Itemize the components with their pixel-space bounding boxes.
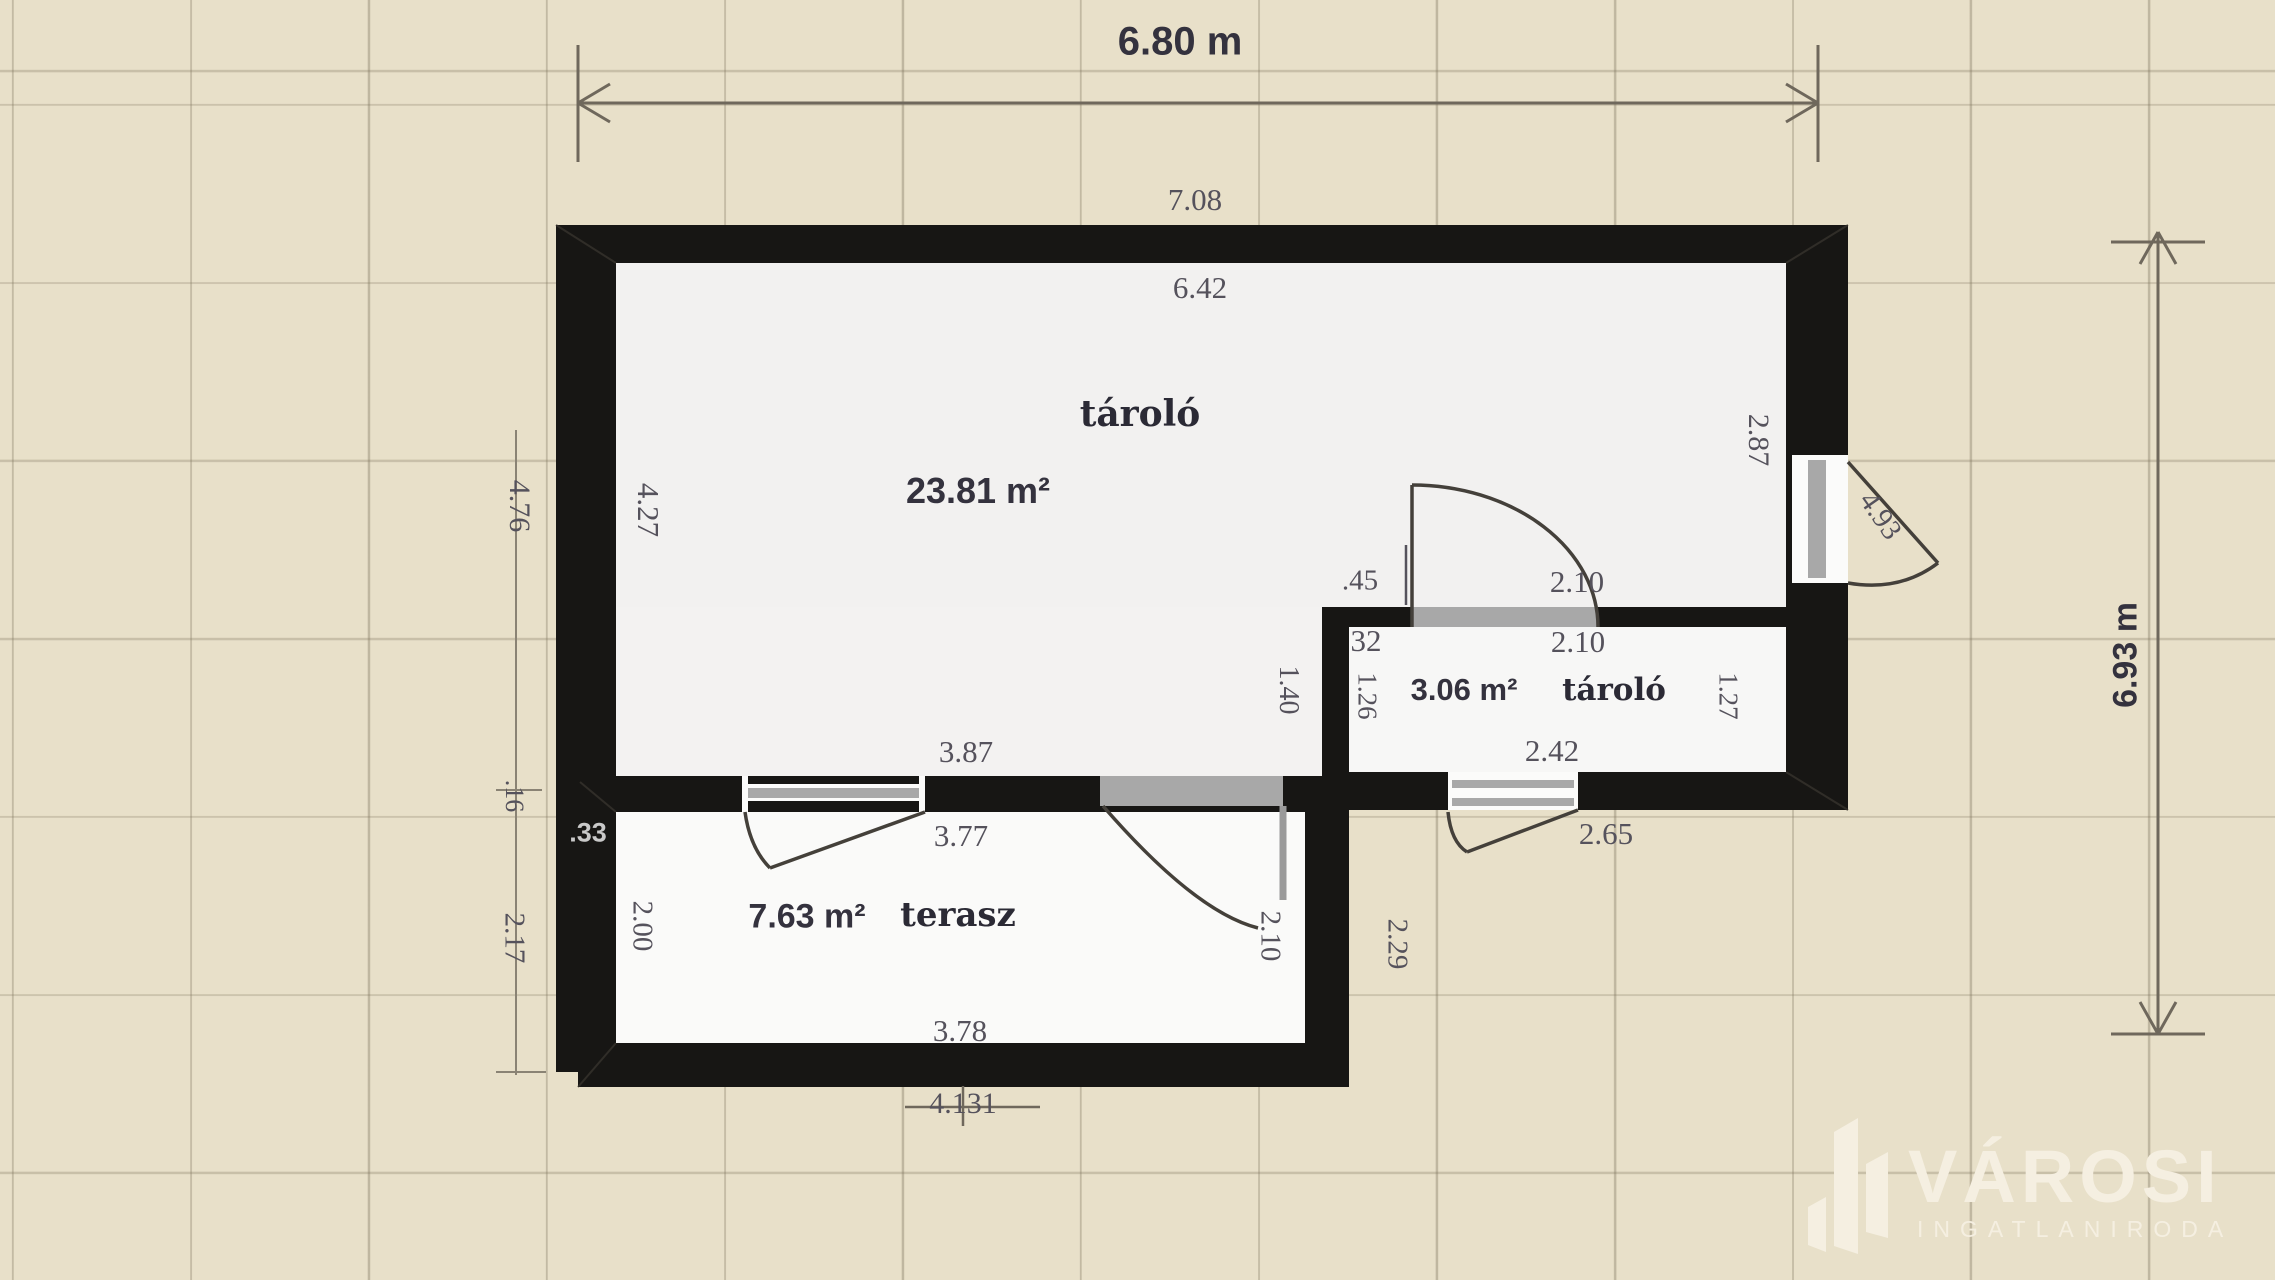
dim-top-wall: 7.08	[1168, 182, 1222, 218]
dim-room1-right: 2.87	[1741, 414, 1775, 467]
dim-terrace-left-inner: 2.00	[626, 901, 659, 952]
dim-room1-left: 4.27	[630, 483, 666, 537]
room1-area: 23.81 m²	[906, 470, 1050, 512]
dim-left-terrace: 2.17	[498, 913, 531, 964]
dim-terrace-bottom: 3.78	[933, 1013, 987, 1049]
logo-subtitle: INGATLANIRODA	[1917, 1216, 2233, 1243]
dim-room2-outside-left: 1.40	[1272, 666, 1304, 715]
logo-buildings-icon	[1800, 1112, 1910, 1257]
dim-room2-right: 1.27	[1713, 672, 1744, 719]
dim-room2-left: 1.26	[1352, 672, 1383, 719]
dim-left-mid: .16	[499, 780, 529, 813]
dim-room2-bottom: 2.42	[1525, 733, 1579, 769]
dim-bottom-outer: 4.131	[929, 1087, 997, 1121]
room1-name: tároló	[1080, 393, 1201, 435]
floor-plan-scene: 6.80 m 7.08 6.42 tároló 23.81 m² 4.76 4.…	[0, 0, 2275, 1280]
dim-terrace-wall-top: 3.87	[939, 734, 993, 770]
dim-left-outer: 4.76	[502, 480, 536, 533]
room2-name: tároló	[1562, 672, 1666, 708]
dim-room2-bottom-outer: 2.65	[1579, 816, 1633, 852]
dim-partition-opening-top: 2.10	[1550, 564, 1604, 600]
dim-terrace-corner: .33	[569, 818, 607, 849]
dim-overall-width: 6.80 m	[1118, 20, 1243, 65]
dim-partition-left: .45	[1342, 565, 1378, 598]
dim-room1-top: 6.42	[1173, 270, 1227, 306]
dim-overall-height: 6.93 m	[2107, 602, 2146, 708]
room3-name: terasz	[900, 895, 1016, 935]
plan-linework	[0, 0, 2275, 1280]
room3-area: 7.63 m²	[748, 898, 865, 937]
room2-area: 3.06 m²	[1411, 672, 1518, 708]
dim-partition-left-inner: 32	[1351, 623, 1382, 659]
logo-title: VÁROSI	[1908, 1134, 2222, 1219]
dim-terrace-door: 2.10	[1254, 911, 1287, 962]
dim-partition-opening-bottom: 2.10	[1551, 624, 1605, 660]
dim-terrace-right-outer: 2.29	[1381, 919, 1414, 970]
dim-terrace-wall-bottom: 3.77	[934, 818, 988, 854]
